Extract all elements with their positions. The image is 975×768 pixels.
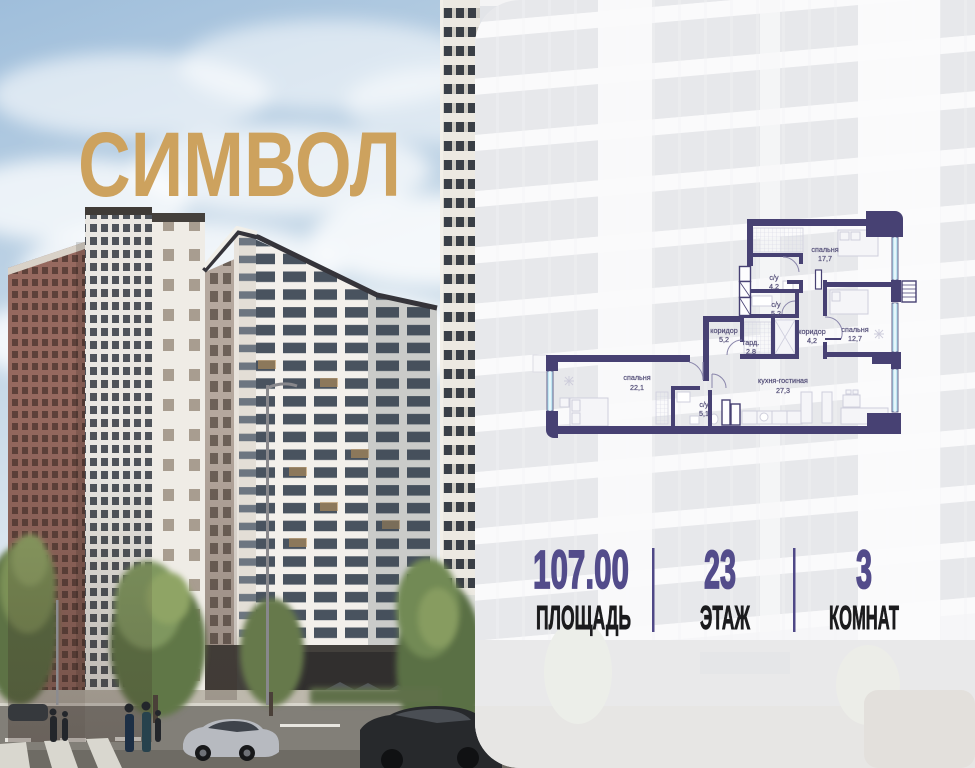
svg-text:5,1: 5,1 [699,409,709,418]
svg-text:коридор: коридор [798,327,825,336]
svg-text:12,7: 12,7 [848,334,862,343]
svg-text:5,2: 5,2 [719,335,729,344]
svg-text:107.00: 107.00 [533,540,629,600]
svg-text:кухня-гостиная: кухня-гостиная [758,376,808,385]
svg-text:коридор: коридор [710,326,737,335]
svg-text:с/у: с/у [771,300,781,309]
svg-text:17,7: 17,7 [818,254,832,263]
svg-text:22,1: 22,1 [630,383,644,392]
svg-text:ЭТАЖ: ЭТАЖ [700,599,750,636]
svg-text:с/у: с/у [699,400,709,409]
svg-text:23: 23 [704,540,736,600]
svg-text:27,3: 27,3 [776,386,790,395]
svg-text:3: 3 [856,540,872,600]
svg-text:КОМНАТ: КОМНАТ [829,599,899,636]
svg-text:5,2: 5,2 [771,309,781,318]
svg-text:спальня: спальня [811,245,838,254]
svg-text:4,2: 4,2 [807,336,817,345]
svg-text:с/у: с/у [769,273,779,282]
svg-text:ПЛОЩАДЬ: ПЛОЩАДЬ [536,599,631,636]
svg-text:4,2: 4,2 [769,282,779,291]
svg-text:спальня: спальня [623,373,650,382]
svg-text:гард.: гард. [743,338,759,347]
svg-text:спальня: спальня [841,325,868,334]
svg-text:2,8: 2,8 [746,347,756,356]
